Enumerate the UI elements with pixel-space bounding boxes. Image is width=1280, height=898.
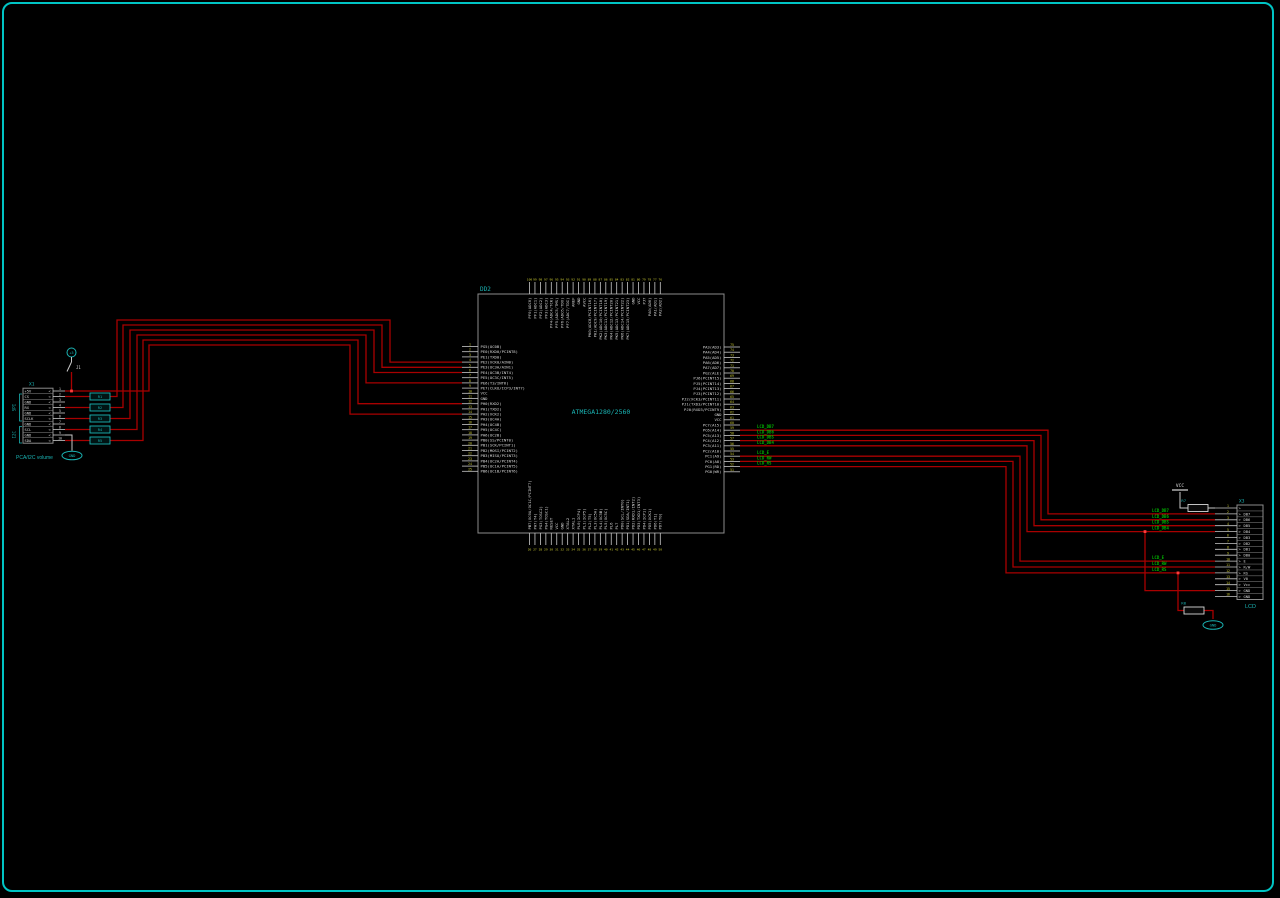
- pin-direction-arrow: <: [49, 417, 52, 421]
- net-label: LCD_DB4: [1152, 526, 1169, 531]
- mcu-pin-number: 33: [566, 548, 570, 552]
- left-connector-caption: PCA/I2C volume: [16, 455, 53, 461]
- mcu-pin-number: 79: [642, 278, 646, 282]
- vcc-symbol-label: VCC: [1176, 483, 1184, 489]
- mcu-pin-label: PD1(SDA/INT1): [625, 499, 630, 529]
- mcu-pin-number: 86: [604, 278, 608, 282]
- mcu-pin-number: 98: [539, 278, 543, 282]
- mcu-pin-number: 96: [549, 278, 553, 282]
- left-connector-pin-number: 6: [59, 415, 61, 419]
- net-label: LCD_RS: [1152, 567, 1167, 572]
- left-connector-pin-number: 1: [59, 387, 61, 391]
- lcd-connector-pin-label: Vcc: [1244, 583, 1251, 587]
- lcd-connector-designator: X3: [1239, 499, 1245, 505]
- left-connector-pin-label: SCLK: [25, 417, 35, 421]
- pin-group-bracket: [20, 394, 23, 421]
- net-label: LCD_E: [1152, 555, 1165, 560]
- mcu-pin-label: AVCC: [581, 297, 586, 307]
- gnd-symbol-label: GND: [69, 453, 77, 458]
- pin-direction-arrow: <: [49, 395, 52, 399]
- mcu-pin-label: PD5(XCK1): [647, 508, 652, 529]
- mcu-designator: DD2: [480, 286, 491, 293]
- lcd-connector-pin-label: DB4: [1244, 530, 1251, 534]
- mcu-pin-label: PK7(ADC15/PCINT23): [625, 298, 630, 340]
- mcu-pin-number: 36: [582, 548, 586, 552]
- pin-direction-arrow: >: [1239, 560, 1242, 564]
- mcu-pin-number: 8: [469, 379, 471, 383]
- net-label: LCD_DB7: [1152, 508, 1169, 513]
- mcu-pin-number: 51: [730, 468, 734, 472]
- schematic-canvas[interactable]: DD2ATMEGA1280/25601PG5(OC0B)2PE0(RXD0/PC…: [0, 0, 1280, 898]
- net-label: LCD_DB6: [1152, 514, 1169, 519]
- mcu-pin-number: 53: [730, 457, 734, 461]
- pin-direction-arrow: >: [1239, 577, 1242, 581]
- lcd-connector-pin-number: 13: [1226, 575, 1230, 579]
- mcu-pin-number: 72: [730, 359, 734, 363]
- junction-dot: [1144, 530, 1147, 533]
- mcu-pin-number: 35: [577, 548, 581, 552]
- left-connector-pin-number: 5: [59, 409, 61, 413]
- lcd-connector-pin-number: 4: [1227, 522, 1229, 526]
- pin-direction-arrow: >: [1239, 548, 1242, 552]
- mcu-pin-label: PB6(OC1B/PCINT6): [481, 469, 518, 474]
- pin-direction-arrow: <: [49, 406, 52, 410]
- lcd-connector-pin-label: DB7: [1244, 512, 1251, 516]
- mcu-pin-label: PL7: [614, 522, 619, 530]
- left-connector-pin-label: SCL: [25, 428, 32, 432]
- mcu-pin-number: 45: [631, 548, 635, 552]
- pin-direction-arrow: <: [49, 411, 52, 415]
- pin-direction-arrow: <: [49, 439, 52, 443]
- mcu-pin-label: PD7(T0): [658, 513, 663, 529]
- mcu-pin-label: PL1(ICP5): [581, 508, 586, 529]
- pin-direction-arrow: >: [1239, 595, 1242, 599]
- mcu-pin-label: PJ7: [641, 297, 646, 305]
- pin-direction-arrow: <: [49, 422, 52, 426]
- mcu-pin-number: 87: [599, 278, 603, 282]
- mcu-pin-number: 7: [469, 374, 471, 378]
- wire[interactable]: [740, 430, 1215, 514]
- series-resistor-label: R2: [98, 406, 102, 410]
- wire[interactable]: [110, 340, 462, 441]
- pin-direction-arrow: >: [1239, 565, 1242, 569]
- pin-direction-arrow: >: [1239, 542, 1242, 546]
- lcd-connector-pin-label: GND: [1244, 595, 1251, 599]
- mcu-pin-label: PG4(TOSC1): [543, 506, 548, 529]
- mcu-pin-number: 73: [730, 353, 734, 357]
- left-connector-pin-number: 4: [59, 404, 61, 408]
- mcu-pin-number: 85: [609, 278, 613, 282]
- left-connector-designator: X1: [29, 382, 35, 388]
- series-resistor-label: R1: [98, 395, 102, 399]
- pin-direction-arrow: <: [49, 400, 52, 404]
- mcu-pin-label: PD6(T1): [652, 513, 657, 529]
- pin-direction-arrow: >: [1239, 518, 1242, 522]
- mcu-pin-number: 77: [653, 278, 657, 282]
- lcd-connector-pin-number: 11: [1226, 563, 1230, 567]
- lcd-connector-pin-number: 7: [1227, 540, 1229, 544]
- mcu-pin-label: XTAL1: [571, 517, 576, 529]
- left-connector-pin-label: SDA: [25, 439, 32, 443]
- mcu-pin-label: PA2(AD2): [658, 298, 663, 317]
- pin-direction-arrow: >: [1239, 571, 1242, 575]
- left-connector-pin-label: GND: [25, 411, 32, 415]
- wire[interactable]: [110, 335, 462, 430]
- mcu-pin-number: 12: [468, 400, 472, 404]
- left-connector-pin-label: GND: [25, 433, 32, 437]
- series-resistor-label: R4: [98, 428, 102, 432]
- mcu-pin-number: 17: [468, 426, 472, 430]
- lcd-connector-pin-number: 3: [1227, 516, 1229, 520]
- mcu-pin-label: PL3(OC5A): [592, 508, 597, 529]
- lcd-connector-pin-number: 6: [1227, 534, 1229, 538]
- mcu-pin-number: 6: [469, 369, 471, 373]
- mcu-pin-number: 65: [730, 395, 734, 399]
- mcu-pin-label: PL5(OC5C): [603, 508, 608, 529]
- mcu-pin-number: 29: [544, 548, 548, 552]
- mcu-pin-number: 63: [730, 405, 734, 409]
- wire[interactable]: [65, 435, 72, 451]
- mcu-pin-number: 1: [469, 343, 471, 347]
- mcu-pin-number: 9: [469, 384, 471, 388]
- mcu-pin-number: 99: [533, 278, 537, 282]
- junction-dot: [1177, 572, 1180, 575]
- pin-direction-arrow: >: [1239, 506, 1242, 510]
- mcu-pin-number: 62: [730, 411, 734, 415]
- mcu-pin-number: 48: [648, 548, 652, 552]
- mcu-pin-label: PK0(ADC8/PCINT16): [587, 298, 592, 338]
- mcu-pin-label: PB7(OC0A/OC1C/PCINT7): [527, 480, 532, 529]
- mcu-pin-number: 27: [533, 548, 537, 552]
- mcu-pin-label: VCC: [636, 297, 641, 305]
- mcu-pin-number: 13: [468, 405, 472, 409]
- mcu-pin-label: PH7(T4): [532, 513, 537, 529]
- lcd-connector-pin-label: RS: [1244, 571, 1248, 575]
- mcu-pin-number: 90: [582, 278, 586, 282]
- pin-direction-arrow: >: [1239, 530, 1242, 534]
- left-connector-pin-number: 10: [58, 437, 62, 441]
- left-connector-pin-label: RX: [25, 406, 30, 410]
- pin-direction-arrow: <: [49, 433, 52, 437]
- mcu-pin-number: 50: [658, 548, 662, 552]
- mcu-pin-number: 25: [468, 467, 472, 471]
- mcu-pin-number: 88: [593, 278, 597, 282]
- lcd-connector-pin-number: 2: [1227, 510, 1229, 514]
- pin-direction-arrow: <: [49, 389, 52, 393]
- mcu-pin-label: PL6: [609, 522, 614, 530]
- left-connector-pin-label: +5V: [25, 389, 32, 393]
- pin-direction-arrow: >: [1239, 536, 1242, 540]
- resistor[interactable]: [1188, 505, 1208, 512]
- lcd-connector-pin-number: 1: [1227, 504, 1229, 508]
- mcu-pin-number: 19: [468, 436, 472, 440]
- pin-direction-arrow: <: [49, 428, 52, 432]
- mcu-pin-label: PL4(OC5B): [598, 508, 603, 529]
- mcu-pin-number: 67: [730, 385, 734, 389]
- mcu-pin-number: 18: [468, 431, 472, 435]
- resistor[interactable]: [1184, 607, 1204, 614]
- wire[interactable]: [740, 456, 1215, 561]
- mcu-pin-number: 70: [730, 369, 734, 373]
- gnd-symbol-label: GND: [1210, 623, 1218, 628]
- mcu-pin-label: XTAL2: [565, 517, 570, 529]
- mcu-pin-number: 55: [730, 447, 734, 451]
- net-label: LCD_DB5: [1152, 520, 1169, 525]
- wire[interactable]: [110, 325, 462, 408]
- mcu-pin-number: 57: [730, 437, 734, 441]
- mcu-pin-number: 82: [626, 278, 630, 282]
- mcu-pin-number: 68: [730, 379, 734, 383]
- lcd-connector-caption: LCD: [1245, 604, 1256, 610]
- mcu-pin-number: 38: [593, 548, 597, 552]
- lcd-connector-pin-label: GND: [1244, 589, 1251, 593]
- mcu-pin-number: 97: [544, 278, 548, 282]
- series-resistor-label: R3: [98, 417, 102, 421]
- mcu-pin-label: PK2(ADC10/PCINT18): [598, 298, 603, 340]
- lcd-connector-pin-label: E: [1244, 560, 1246, 564]
- mcu-pin-number: 28: [539, 548, 543, 552]
- mcu-pin-label: PF2(ADC2): [538, 298, 543, 319]
- pin-direction-arrow: >: [1239, 589, 1242, 593]
- mcu-pin-label: AREF: [571, 297, 576, 307]
- wire[interactable]: [740, 441, 1215, 526]
- mcu-part-name: ATMEGA1280/2560: [572, 408, 631, 416]
- mcu-pin-label: PF3(ADC3): [543, 298, 548, 319]
- mcu-pin-number: 21: [468, 447, 472, 451]
- mcu-pin-number: 89: [588, 278, 592, 282]
- mcu-pin-number: 92: [571, 278, 575, 282]
- wire[interactable]: [740, 435, 1215, 519]
- mcu-pin-label: GND: [630, 297, 635, 305]
- mcu-pin-number: 16: [468, 421, 472, 425]
- mcu-pin-label: PF0(ADC0): [527, 298, 532, 319]
- mcu-pin-number: 91: [577, 278, 581, 282]
- mcu-pin-number: 78: [648, 278, 652, 282]
- mcu-pin-label: PF4(ADC4/TCK): [549, 298, 554, 328]
- lcd-connector-pin-label: R/W: [1244, 565, 1251, 569]
- pin-direction-arrow: >: [1239, 512, 1242, 516]
- mcu-pin-number: 41: [609, 548, 613, 552]
- lcd-connector-pin-number: 16: [1226, 593, 1230, 597]
- pin-direction-arrow: >: [1239, 554, 1242, 558]
- mcu-pin-label: PK1(ADC9/PCINT17): [592, 298, 597, 338]
- net-label: LCD_DB4: [757, 440, 774, 445]
- mcu-pin-number: 24: [468, 462, 472, 466]
- pin-direction-arrow: >: [1239, 524, 1242, 528]
- mcu-pin-label: PF1(ADC1): [532, 298, 537, 319]
- lcd-connector-pin-label: DB1: [1244, 548, 1251, 552]
- mcu-pin-label: PK6(ADC14/PCINT22): [620, 298, 625, 340]
- mcu-pin-label: PK3(ADC11/PCINT19): [603, 298, 608, 340]
- lcd-connector-pin-number: 8: [1227, 546, 1229, 550]
- mcu-pin-label: PG0(WR): [705, 469, 721, 474]
- left-connector-pin-number: 8: [59, 426, 61, 430]
- mcu-pin-number: 47: [642, 548, 646, 552]
- mcu-pin-number: 3: [469, 353, 471, 357]
- mcu-pin-number: 4: [469, 358, 471, 362]
- lcd-connector-pin-label: DB5: [1244, 524, 1251, 528]
- mcu-pin-number: 26: [528, 548, 532, 552]
- mcu-pin-number: 81: [631, 278, 635, 282]
- mcu-pin-number: 14: [468, 410, 472, 414]
- mcu-pin-number: 94: [560, 278, 564, 282]
- mcu-pin-number: 61: [730, 416, 734, 420]
- mcu-pin-number: 59: [730, 426, 734, 430]
- left-connector-pin-label: CS: [25, 395, 29, 399]
- junction-dot: [70, 390, 73, 393]
- mcu-pin-number: 76: [658, 278, 662, 282]
- mcu-pin-label: PG3(TOSC2): [538, 506, 543, 529]
- lcd-connector-pin-number: 15: [1226, 587, 1230, 591]
- mcu-pin-number: 75: [730, 343, 734, 347]
- lcd-connector-pin-label: DB0: [1244, 554, 1251, 558]
- mcu-pin-number: 100: [527, 278, 533, 282]
- mcu-pin-number: 10: [468, 389, 472, 393]
- mcu-pin-number: 84: [615, 278, 619, 282]
- wire[interactable]: [1204, 611, 1213, 620]
- mcu-pin-number: 46: [637, 548, 641, 552]
- mcu-pin-number: 31: [555, 548, 559, 552]
- mcu-pin-number: 20: [468, 441, 472, 445]
- mcu-pin-label: PD0(SCL/INT0): [620, 499, 625, 529]
- mcu-pin-number: 49: [653, 548, 657, 552]
- mcu-pin-label: PD3(TXD1/INT3): [636, 497, 641, 530]
- mcu-pin-number: 37: [588, 548, 592, 552]
- mcu-pin-number: 60: [730, 421, 734, 425]
- pin-group-label: SPI: [12, 403, 17, 411]
- mcu-pin-label: PL0(ICP4): [576, 508, 581, 529]
- wire[interactable]: [110, 320, 462, 397]
- mcu-pin-label: PF6(ADC6/TDO): [560, 298, 565, 328]
- mcu-pin-number: 52: [730, 463, 734, 467]
- lcd-connector-pin-number: 5: [1227, 528, 1229, 532]
- mcu-pin-number: 2: [469, 348, 471, 352]
- mcu-pin-number: 15: [468, 415, 472, 419]
- mcu-pin-label: PA1(AD1): [652, 298, 657, 317]
- mcu-pin-number: 83: [620, 278, 624, 282]
- mcu-pin-number: 11: [468, 395, 472, 399]
- mcu-pin-label: PD2(RXD1/INT2): [630, 497, 635, 530]
- wire[interactable]: [65, 372, 72, 391]
- mcu-pin-number: 69: [730, 374, 734, 378]
- lcd-connector-pin-label: DB2: [1244, 542, 1251, 546]
- mcu-pin-number: 42: [615, 548, 619, 552]
- mcu-pin-number: 74: [730, 348, 734, 352]
- resistor-designator: R8: [1181, 601, 1186, 606]
- wire[interactable]: [110, 330, 462, 419]
- mcu-pin-label: RESET: [549, 517, 554, 529]
- mcu-pin-label: VCC: [554, 522, 559, 530]
- mcu-pin-label: PK5(ADC13/PCINT21): [614, 298, 619, 340]
- jumper-designator: J1: [76, 365, 81, 370]
- mcu-pin-label: PF7(ADC7/TDI): [565, 298, 570, 328]
- jumper-switch[interactable]: [67, 362, 72, 372]
- mcu-pin-label: GND: [576, 297, 581, 305]
- wire[interactable]: [740, 446, 1215, 532]
- pin-group-bracket: [20, 427, 23, 444]
- mcu-pin-number: 71: [730, 364, 734, 368]
- mcu-pin-number: 93: [566, 278, 570, 282]
- pin-direction-arrow: >: [1239, 583, 1242, 587]
- mcu-pin-number: 40: [604, 548, 608, 552]
- net-label: LCD_RW: [1152, 561, 1167, 566]
- mcu-pin-number: 34: [571, 548, 575, 552]
- mcu-pin-number: 95: [555, 278, 559, 282]
- mcu-pin-number: 64: [730, 400, 734, 404]
- lcd-connector-pin-number: 12: [1226, 569, 1230, 573]
- lcd-connector-pin-number: 9: [1227, 551, 1229, 555]
- lcd-connector-pin-number: 10: [1226, 557, 1230, 561]
- left-connector-pin-label: GND: [25, 400, 32, 404]
- pin-group-label: I2C: [12, 431, 17, 439]
- net-label: LCD_RS: [757, 461, 772, 466]
- left-connector-pin-number: 2: [59, 393, 61, 397]
- left-connector-pin-number: 7: [59, 420, 61, 424]
- mcu-pin-number: 58: [730, 431, 734, 435]
- lcd-connector-pin-label: DB3: [1244, 536, 1251, 540]
- mcu-pin-label: PF5(ADC5/TMS): [554, 298, 559, 328]
- mcu-pin-number: 80: [637, 278, 641, 282]
- mcu-pin-label: PL2(T5): [587, 513, 592, 529]
- mcu-pin-label: PA0(AD0): [647, 298, 652, 317]
- mcu-pin-number: 54: [730, 452, 734, 456]
- lcd-connector-pin-number: 14: [1226, 581, 1230, 585]
- mcu-pin-number: 5: [469, 363, 471, 367]
- mcu-pin-label: PD4(ICP1): [641, 508, 646, 529]
- mcu-pin-number: 22: [468, 452, 472, 456]
- mcu-pin-number: 39: [599, 548, 603, 552]
- mcu-pin-number: 43: [620, 548, 624, 552]
- mcu-pin-label: PK4(ADC12/PCINT20): [609, 298, 614, 340]
- mcu-pin-number: 23: [468, 457, 472, 461]
- left-connector-pin-number: 3: [59, 398, 61, 402]
- mcu-pin-number: 66: [730, 390, 734, 394]
- mcu-pin-label: GND: [560, 522, 565, 530]
- lcd-connector-pin-label: V0: [1244, 577, 1248, 581]
- plus5-node-label: +5: [69, 351, 73, 355]
- mcu-pin-number: 30: [549, 548, 553, 552]
- resistor-designator: R7: [1181, 498, 1186, 503]
- mcu-pin-number: 56: [730, 442, 734, 446]
- left-connector-pin-label: GND: [25, 422, 32, 426]
- lcd-connector-pin-label: DB6: [1244, 518, 1251, 522]
- series-resistor-label: R5: [98, 439, 102, 443]
- left-connector-pin-number: 9: [59, 431, 61, 435]
- mcu-pin-number: 32: [560, 548, 564, 552]
- mcu-pin-number: 44: [626, 548, 630, 552]
